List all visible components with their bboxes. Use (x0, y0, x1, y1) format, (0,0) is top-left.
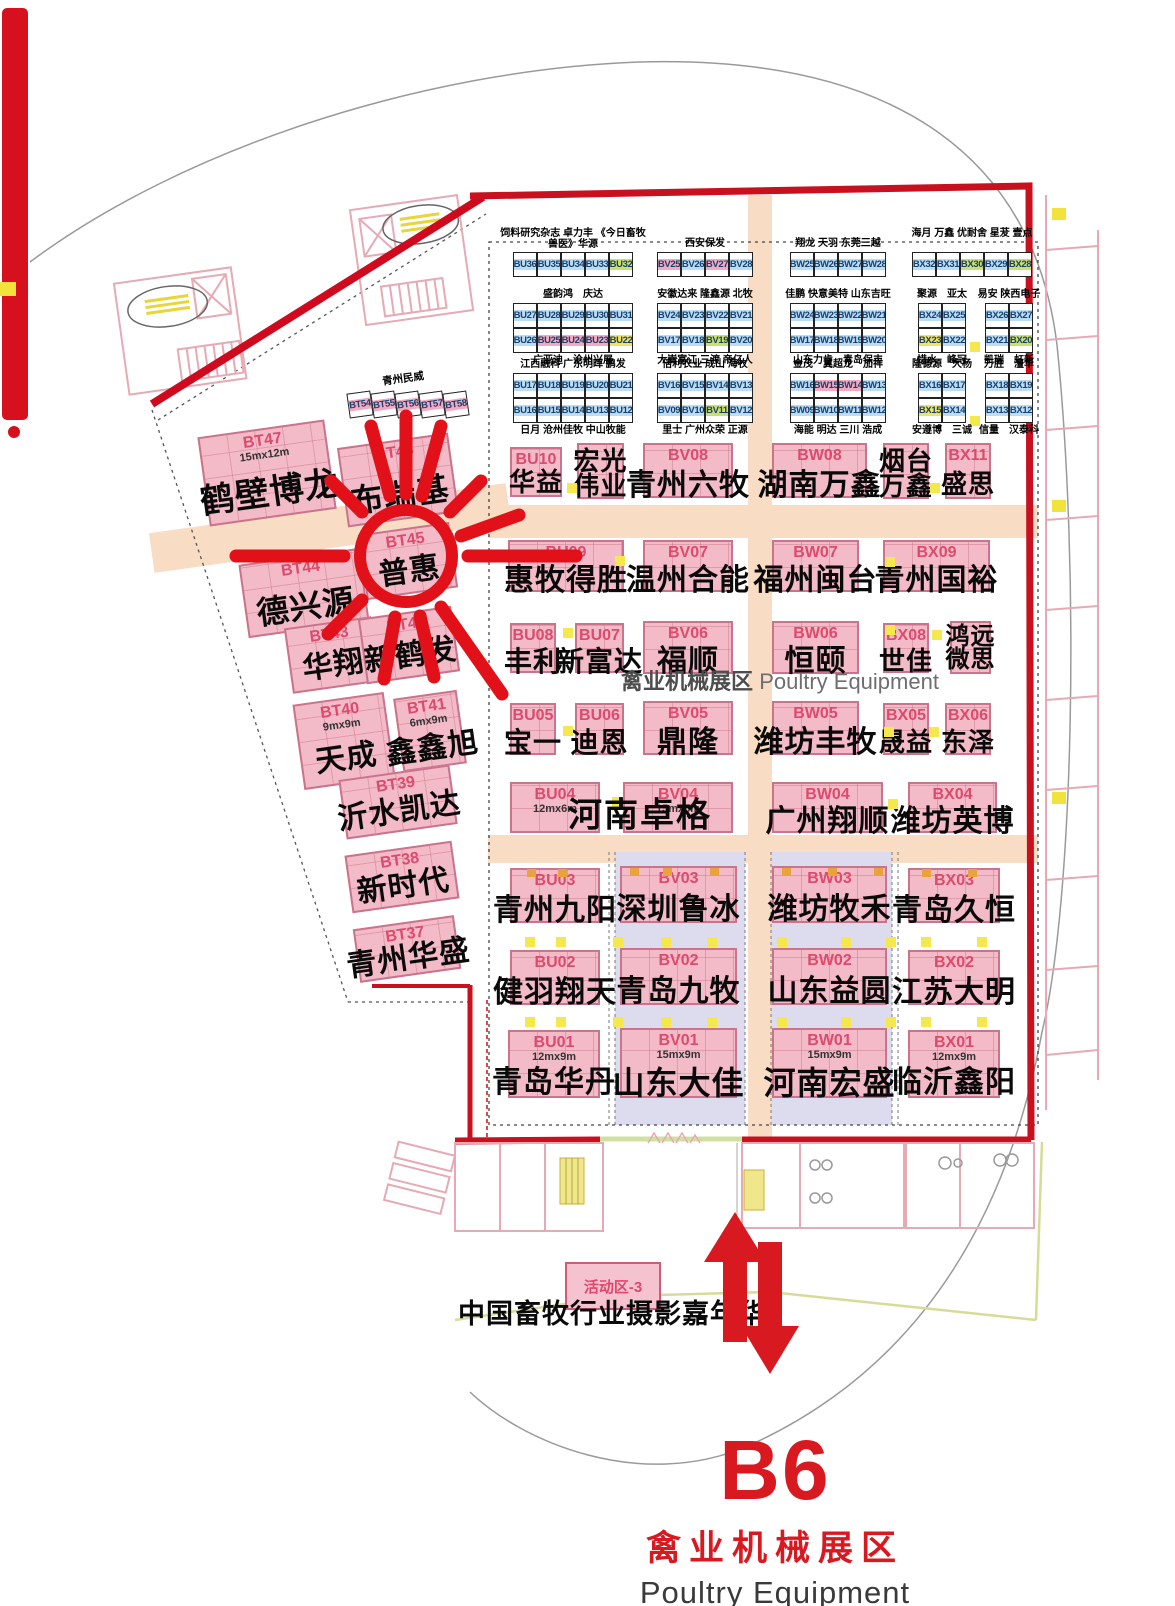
booth-BV21: BV21 (729, 303, 753, 328)
booth-BW28: BW28 (862, 252, 886, 277)
yellow-marker (888, 799, 898, 809)
booth-BX21: BX21 (985, 328, 1009, 353)
booth-BU09: BU09惠牧得胜 (508, 540, 624, 592)
booth-BU22: BU22 (609, 328, 633, 353)
booth-BT46: BT46布瑞基 (337, 433, 459, 528)
group-label: 海月 万鑫 优耐舍 星茇 壹点 (897, 228, 1047, 239)
group-label: 盛韵鸿 庆达 (498, 289, 648, 300)
yellow-marker (921, 937, 931, 947)
activity-title: 中国畜牧行业摄影嘉年华 (458, 1292, 766, 1331)
yellow-marker (661, 937, 671, 947)
booth-BV23: BV23 (681, 303, 705, 328)
yellow-marker (613, 937, 623, 947)
booth-BT38: BT38新时代 (344, 841, 459, 913)
hall-zone-name-en: Poultry Equipment (565, 1575, 985, 1606)
booth-BX04: BX04潍坊英博 (908, 782, 997, 833)
booth-BW01: BW0115mx9m河南宏盛 (772, 1028, 887, 1098)
orange-marker (828, 868, 837, 876)
booth-BX20: BX20 (1009, 328, 1033, 353)
booth-BV05: BV05鼎隆 (643, 701, 733, 755)
booth-BU27: BU27 (513, 303, 537, 328)
booth-BX06: BX06东泽 (945, 703, 991, 755)
booth-BU10: BU10华益 (510, 447, 562, 497)
booth-BX30: BX30 (960, 252, 984, 277)
yellow-marker (921, 1017, 931, 1027)
yellow-marker (970, 342, 980, 352)
booth-BX23: BX23 (918, 328, 942, 353)
orange-marker (527, 869, 536, 877)
booth-BX19: BX19 (1009, 373, 1033, 398)
orange-marker (922, 869, 931, 877)
booth-BT41: BT416mx9m鑫鑫旭 (393, 690, 467, 772)
booth-BW11: BW11 (838, 398, 862, 423)
booth-BV16: BV16 (657, 373, 681, 398)
yellow-marker (929, 727, 939, 737)
booth-BU25: BU25 (537, 328, 561, 353)
booth-BX31: BX31 (936, 252, 960, 277)
booth-BU29: BU29 (561, 303, 585, 328)
group-label: 信量 汉泰科 (934, 425, 1084, 436)
booth-BV28: BV28 (729, 252, 753, 277)
booth-BU06: BU06迪恩 (575, 703, 624, 755)
booth-BX14: BX14 (942, 398, 966, 423)
zone-center-label-en: Poultry Equipment (759, 669, 939, 694)
booth-BW24: BW24 (790, 303, 814, 328)
booth-BW08: BW08湖南万鑫 (772, 443, 867, 498)
yellow-marker (977, 1017, 987, 1027)
booth-BV20: BV20 (729, 328, 753, 353)
orange-marker (558, 869, 567, 877)
orange-marker (968, 869, 977, 877)
booth-BW04: BW04广州翔顺 (772, 782, 883, 833)
booth-BU13: BU13 (585, 398, 609, 423)
booth-BV24: BV24 (657, 303, 681, 328)
yellow-marker (661, 1017, 671, 1027)
booth-BW22: BW22 (838, 303, 862, 328)
booth-BX29: BX29 (984, 252, 1008, 277)
yellow-marker (932, 630, 942, 640)
booth-BX01: BX0112mx9m临沂鑫阳 (908, 1030, 1000, 1098)
booth-BV02: BV02青岛九牧 (620, 948, 737, 1005)
yellow-marker (841, 937, 851, 947)
booth-宏光伟业: 宏光 伟业 (577, 443, 624, 499)
yellow-marker (567, 483, 577, 493)
zone-center-label-cn: 禽业机械展区 (621, 669, 753, 694)
booth-BX25: BX25 (942, 303, 966, 328)
group-label: 倍利农业 成山 海牧 (630, 359, 780, 370)
booth-BV27: BV27 (705, 252, 729, 277)
booth-BX26: BX26 (985, 303, 1009, 328)
booth-BX22: BX22 (942, 328, 966, 353)
booth-BT47: BT4715mx12m鹤壁博龙 (197, 420, 336, 527)
booth-BU14: BU14 (561, 398, 585, 423)
booth-BU01: BU0112mx9m青岛华丹 (508, 1030, 600, 1098)
yellow-marker (563, 628, 573, 638)
yellow-marker (885, 557, 895, 567)
booth-BX02: BX02江苏大明 (908, 950, 1000, 1005)
booth-BW05: BW05潍坊丰牧 (772, 701, 859, 755)
booth-BW19: BW19 (838, 328, 862, 353)
booth-BV22: BV22 (705, 303, 729, 328)
booth-BX27: BX27 (1009, 303, 1033, 328)
group-label: 里士 广州众荣 正源 (630, 425, 780, 436)
group-label: 翔龙 天羽 东莞三越 (763, 238, 913, 249)
booth-BV07: BV07温州合能 (643, 540, 733, 592)
booth-BV17: BV17 (657, 328, 681, 353)
booth-BT58: BT58 (442, 390, 469, 418)
booth-BX12: BX12 (1009, 398, 1033, 423)
booth-BV18: BV18 (681, 328, 705, 353)
booth-BW13: BW13 (862, 373, 886, 398)
booth-BW14: BW14 (838, 373, 862, 398)
booth-BU34: BU34 (561, 252, 585, 277)
booth-BU19: BU19 (561, 373, 585, 398)
booth-BW21: BW21 (862, 303, 886, 328)
yellow-marker (615, 556, 625, 566)
booth-BV14: BV14 (705, 373, 729, 398)
booth-BV26: BV26 (681, 252, 705, 277)
booth-BU16: BU16 (513, 398, 537, 423)
group-label: 易安 陕西电子 (934, 289, 1084, 300)
group-label: 日月 沧州佳牧 中山牧能 (498, 425, 648, 436)
booth-BT42: BT42新鹤发 (358, 606, 460, 684)
booth-BX15: BX15 (918, 398, 942, 423)
booth-BW15: BW15 (814, 373, 838, 398)
exhibition-floor-plan: 饲料研究杂志 卓力丰 《今日畜牧兽医》华源BU36BU35BU34BU33BU3… (0, 0, 1175, 1606)
booth-BV15: BV15 (681, 373, 705, 398)
yellow-marker (563, 726, 573, 736)
booth-BW02: BW02山东益圆 (772, 948, 887, 1005)
booth-BV01: BV0115mx9m山东大佳 (620, 1028, 737, 1098)
booth-BV12: BV12 (729, 398, 753, 423)
yellow-marker (930, 483, 940, 493)
orange-marker (782, 868, 791, 876)
booth-BV10: BV10 (681, 398, 705, 423)
booth-BU23: BU23 (585, 328, 609, 353)
booth-BX28: BX28 (1008, 252, 1032, 277)
group-label: 西安保发 (630, 238, 780, 249)
yellow-marker (556, 937, 566, 947)
booth-BW07: BW07福州闽台 (772, 540, 859, 592)
booth-BU26: BU26 (513, 328, 537, 353)
booth-BW27: BW27 (838, 252, 862, 277)
booth-BW20: BW20 (862, 328, 886, 353)
booth-BW18: BW18 (814, 328, 838, 353)
zone-center-label: 禽业机械展区 Poultry Equipment (560, 664, 1000, 696)
booth-BU03: BU03青州九阳 (510, 868, 600, 923)
yellow-marker (556, 1017, 566, 1027)
yellow-marker (841, 1017, 851, 1027)
yellow-marker (777, 937, 787, 947)
booth-BU36: BU36 (513, 252, 537, 277)
booth-BV19: BV19 (705, 328, 729, 353)
booth-BX18: BX18 (985, 373, 1009, 398)
booth-BW23: BW23 (814, 303, 838, 328)
booth-BU05: BU05宝一 (510, 703, 556, 755)
booth-BU15: BU15 (537, 398, 561, 423)
booth-BU08: BU08丰利 (510, 623, 556, 673)
booth-BV08: BV08青州六牧 (643, 443, 733, 498)
yellow-marker (977, 937, 987, 947)
yellow-marker (525, 937, 535, 947)
booth-BX16: BX16 (918, 373, 942, 398)
yellow-marker (707, 1017, 717, 1027)
booth-BU28: BU28 (537, 303, 561, 328)
yellow-marker (886, 1017, 896, 1027)
booth-BV09: BV09 (657, 398, 681, 423)
booth-BV13: BV13 (729, 373, 753, 398)
hall-code: B6 (565, 1428, 985, 1512)
booth-BU18: BU18 (537, 373, 561, 398)
yellow-marker (886, 937, 896, 947)
booth-BW25: BW25 (790, 252, 814, 277)
yellow-marker (885, 625, 895, 635)
booth-BU21: BU21 (609, 373, 633, 398)
yellow-marker (525, 1017, 535, 1027)
orange-marker (874, 868, 883, 876)
booth-BU12: BU12 (609, 398, 633, 423)
booth-BU31: BU31 (609, 303, 633, 328)
booth-BT45: BT45普惠 (358, 522, 458, 600)
booth-烟台万鑫: 烟台 万鑫 (883, 443, 929, 499)
orange-marker (630, 868, 639, 876)
group-label: 饲料研究杂志 卓力丰 《今日畜牧兽医》华源 (498, 228, 648, 250)
booth-BU32: BU32 (609, 252, 633, 277)
hall-footer: B6 禽业机械展区 Poultry Equipment (565, 1428, 985, 1606)
booth-BU30: BU30 (585, 303, 609, 328)
yellow-marker (707, 937, 717, 947)
booth-BV11: BV11 (705, 398, 729, 423)
booth-BU02: BU02健羽翔天 (510, 950, 600, 1005)
booth-BW16: BW16 (790, 373, 814, 398)
booth-BU35: BU35 (537, 252, 561, 277)
booth-BW26: BW26 (814, 252, 838, 277)
booth-BX17: BX17 (942, 373, 966, 398)
group-label: 安徽达来 隆鑫源 北牧 (630, 289, 780, 300)
booth-BW10: BW10 (814, 398, 838, 423)
booth-BX11: BX11盛思 (945, 443, 991, 499)
booth-BW12: BW12 (862, 398, 886, 423)
booth-BT37: BT37青州华盛 (353, 915, 462, 983)
booth-BU20: BU20 (585, 373, 609, 398)
booth-BX09: BX09青州国裕 (883, 540, 990, 592)
group-label: 江西融科 广东明晖 鹏发 (498, 359, 648, 370)
booth-BX24: BX24 (918, 303, 942, 328)
booth-BW17: BW17 (790, 328, 814, 353)
hall-zone-name-cn: 禽业机械展区 (565, 1520, 985, 1571)
orange-marker (663, 868, 672, 876)
booth-BX32: BX32 (912, 252, 936, 277)
booth-BV25: BV25 (657, 252, 681, 277)
yellow-marker (613, 1017, 623, 1027)
group-label: 万胜 澶华 (934, 359, 1084, 370)
yellow-marker (884, 727, 894, 737)
booth-BX13: BX13 (985, 398, 1009, 423)
orange-marker (710, 868, 719, 876)
booth-BU17: BU17 (513, 373, 537, 398)
booths-layer: 饲料研究杂志 卓力丰 《今日畜牧兽医》华源BU36BU35BU34BU33BU3… (0, 0, 1175, 1606)
yellow-marker (777, 1017, 787, 1027)
company-name: 河南卓格 (568, 788, 712, 837)
booth-BU24: BU24 (561, 328, 585, 353)
booth-BW09: BW09 (790, 398, 814, 423)
booth-BU33: BU33 (585, 252, 609, 277)
